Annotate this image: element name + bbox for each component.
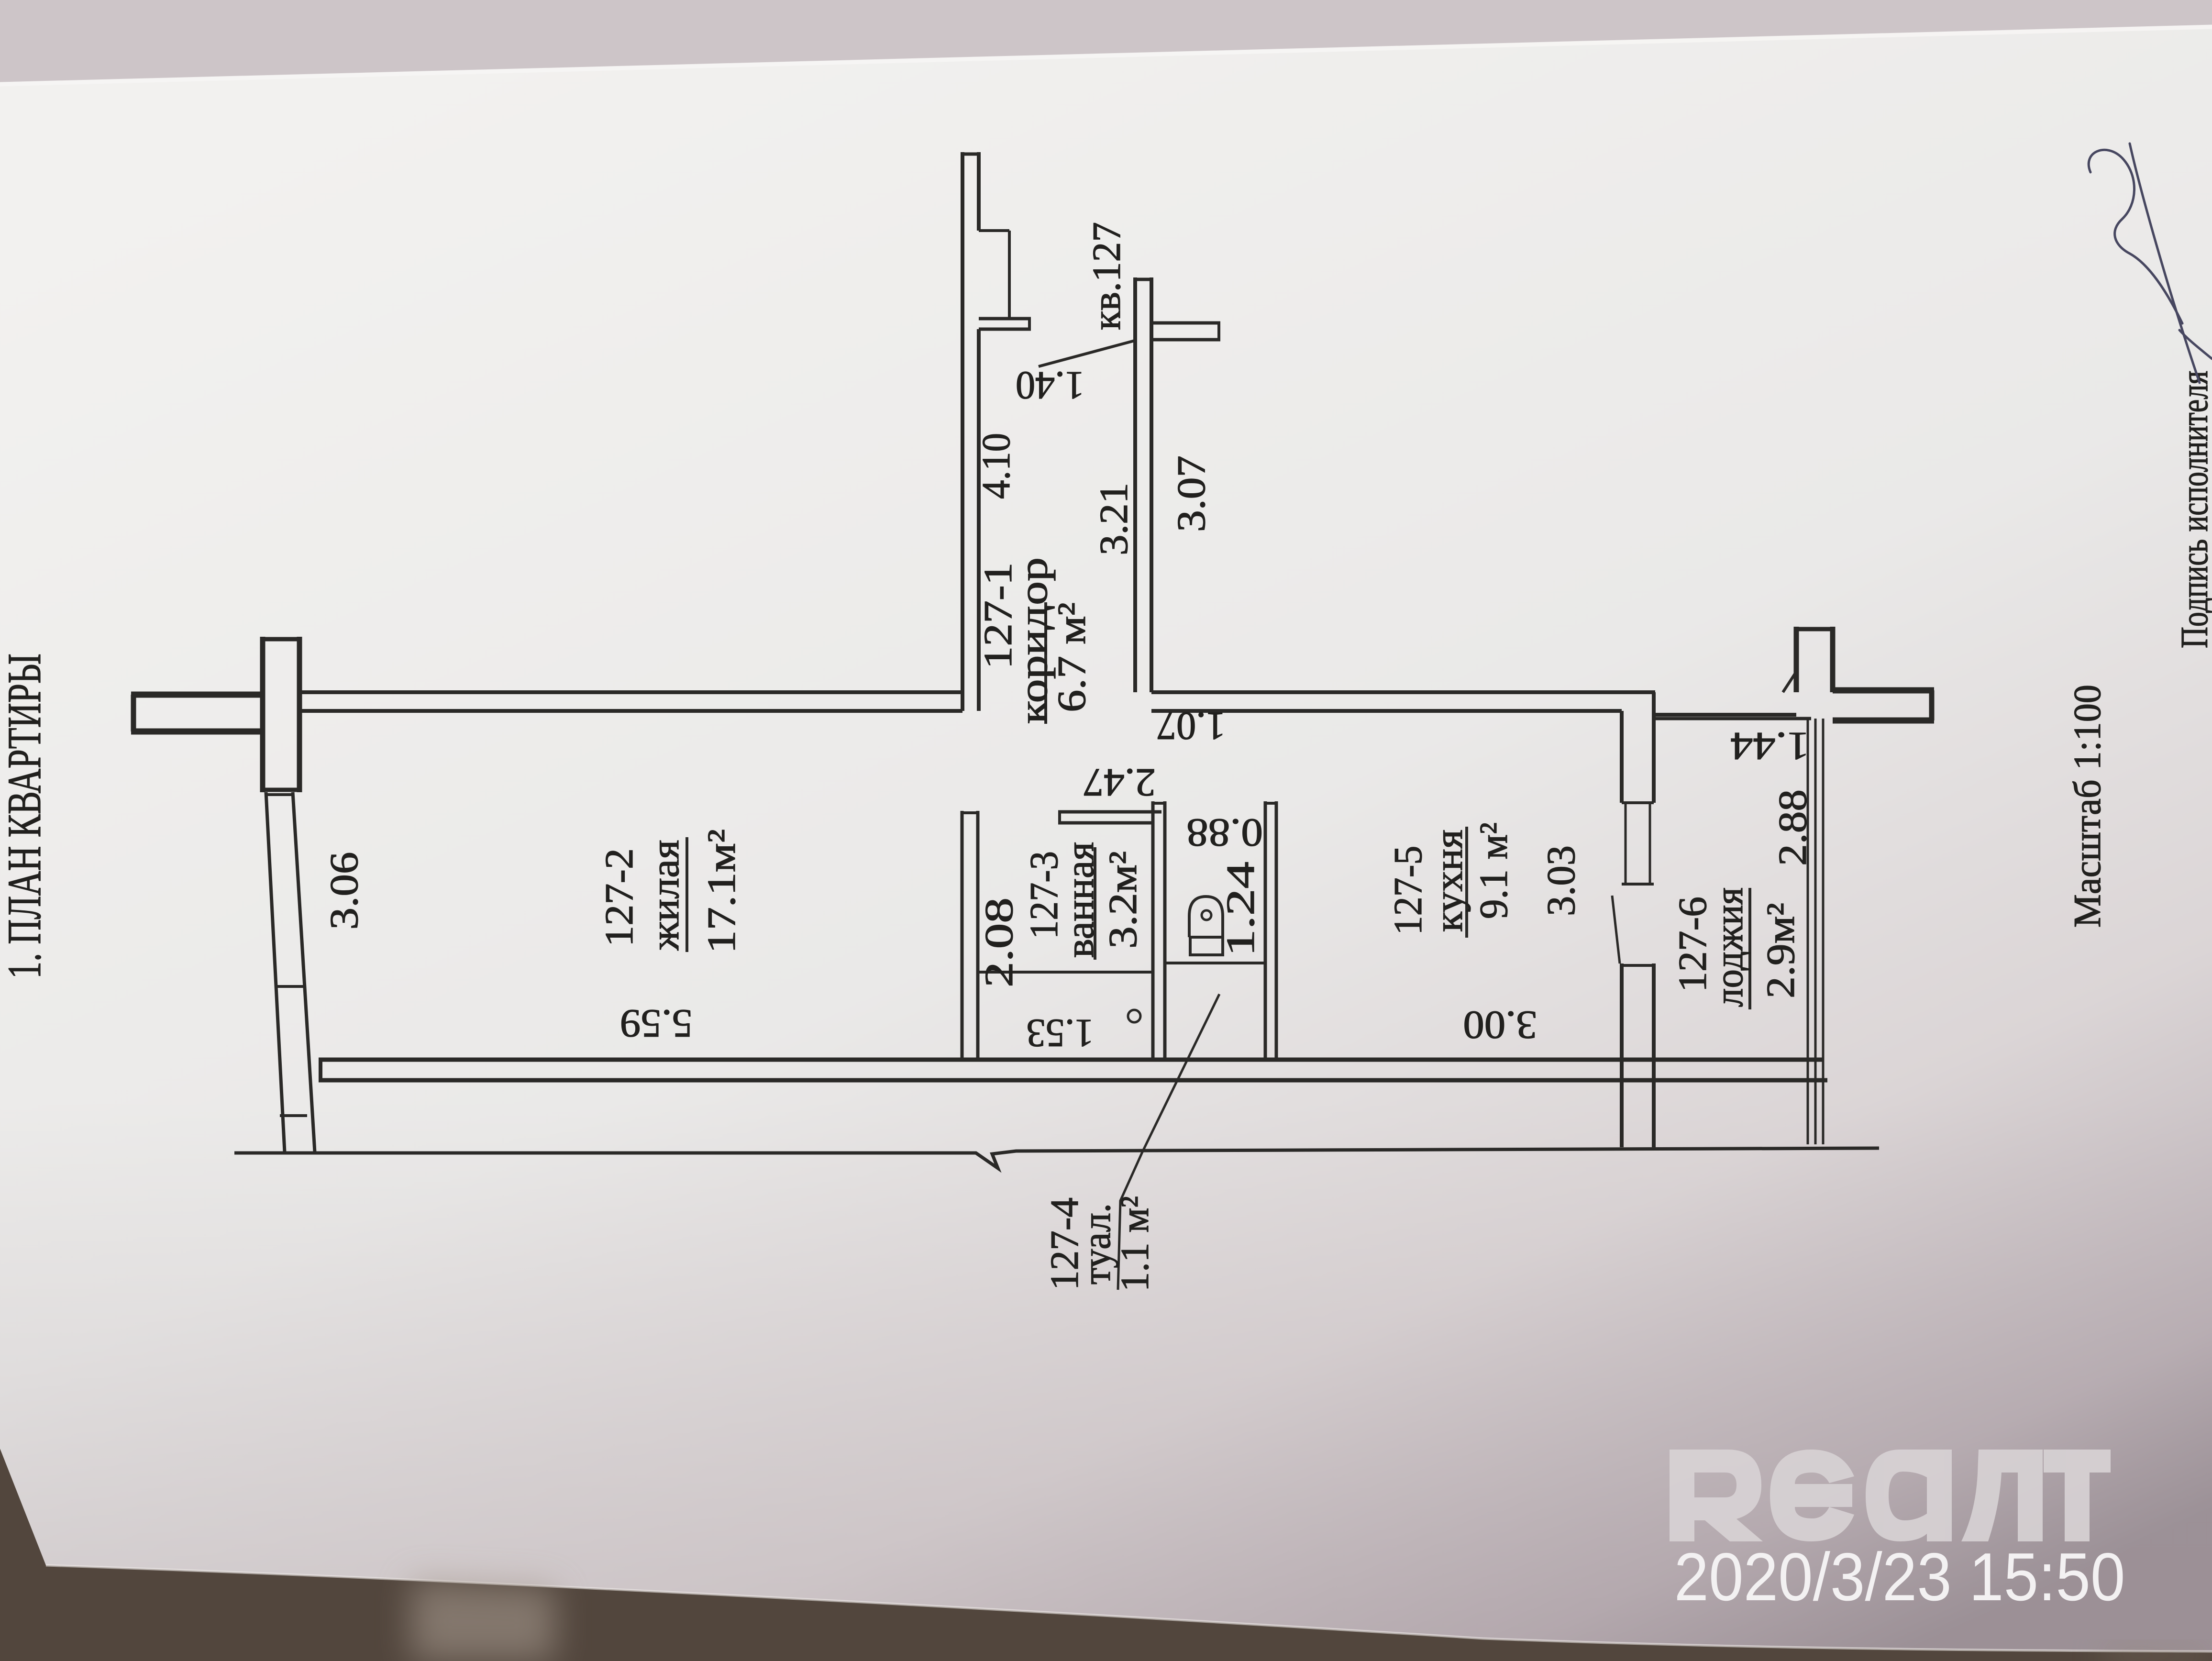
svg-text:0.88: 0.88 bbox=[1186, 810, 1263, 855]
svg-text:2.88: 2.88 bbox=[1770, 789, 1815, 866]
svg-text:4.10: 4.10 bbox=[974, 433, 1018, 499]
svg-text:1.1 м²: 1.1 м² bbox=[1113, 1196, 1157, 1292]
svg-text:кв.127: кв.127 bbox=[1084, 222, 1129, 330]
svg-text:3.00: 3.00 bbox=[1463, 1003, 1537, 1047]
svg-text:Масштаб 1:100: Масштаб 1:100 bbox=[2067, 685, 2109, 928]
svg-text:127-5: 127-5 bbox=[1386, 846, 1430, 935]
svg-text:жилая: жилая bbox=[643, 840, 687, 951]
svg-text:127-2: 127-2 bbox=[597, 848, 641, 947]
svg-text:2.9м²: 2.9м² bbox=[1759, 903, 1803, 998]
svg-text:кухня: кухня bbox=[1427, 830, 1471, 932]
svg-text:1.07: 1.07 bbox=[1157, 704, 1226, 748]
svg-text:3.21: 3.21 bbox=[1092, 483, 1136, 555]
svg-text:1. ПЛАН КВАРТИРЫ: 1. ПЛАН КВАРТИРЫ bbox=[0, 653, 51, 979]
svg-text:1.24: 1.24 bbox=[1218, 862, 1263, 956]
svg-text:2.08: 2.08 bbox=[977, 897, 1021, 987]
svg-text:17.1м²: 17.1м² bbox=[699, 829, 744, 953]
svg-text:3.07: 3.07 bbox=[1169, 455, 1214, 532]
svg-text:3.03: 3.03 bbox=[1539, 845, 1583, 916]
svg-text:1.40: 1.40 bbox=[1016, 363, 1084, 408]
svg-text:5.59: 5.59 bbox=[620, 1001, 693, 1046]
svg-text:6.7 м²: 6.7 м² bbox=[1050, 602, 1094, 712]
svg-text:9.1 м²: 9.1 м² bbox=[1471, 822, 1516, 919]
svg-text:2.47: 2.47 bbox=[1083, 760, 1156, 805]
svg-text:лоджия: лоджия bbox=[1707, 887, 1751, 1007]
svg-text:ванная: ванная bbox=[1058, 842, 1102, 958]
svg-text:1.53: 1.53 bbox=[1027, 1011, 1094, 1055]
svg-text:3.2м²: 3.2м² bbox=[1101, 851, 1145, 949]
svg-text:Подпись исполнителя: Подпись исполнителя bbox=[2174, 371, 2212, 648]
svg-text:2020/3/23 15:50: 2020/3/23 15:50 bbox=[1674, 1539, 2125, 1615]
svg-text:1.44: 1.44 bbox=[1731, 724, 1810, 768]
svg-text:3.06: 3.06 bbox=[322, 852, 366, 930]
